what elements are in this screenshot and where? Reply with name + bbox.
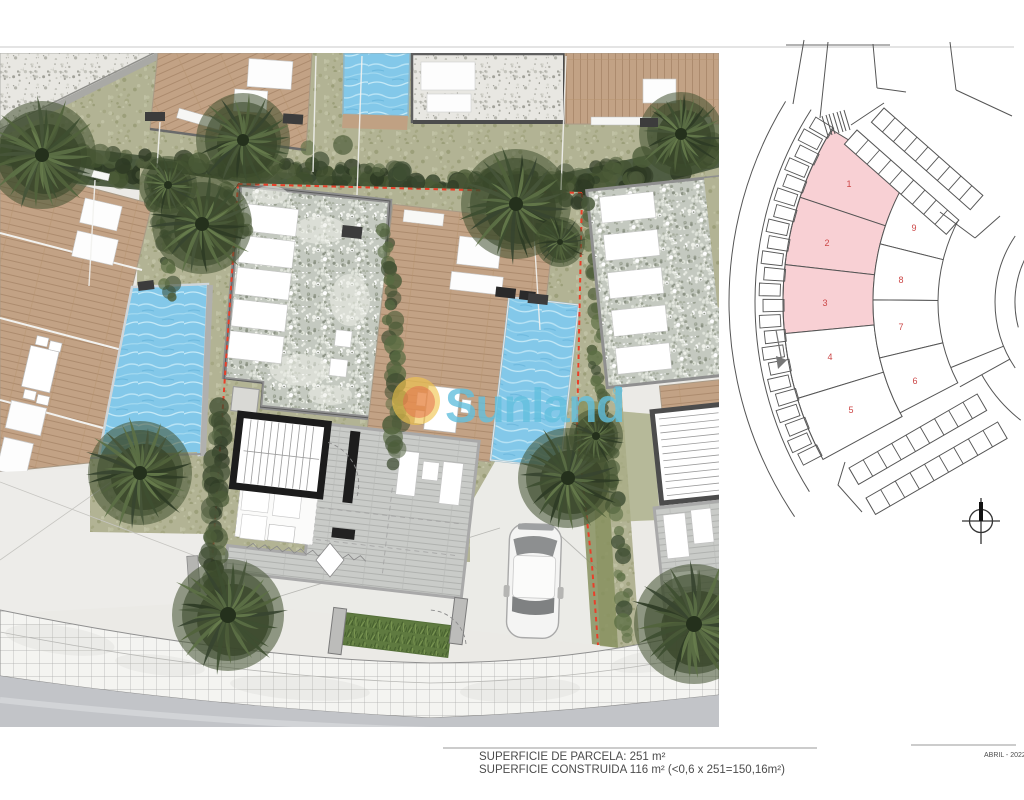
- svg-text:5: 5: [848, 405, 853, 415]
- svg-text:Sunland: Sunland: [445, 380, 624, 433]
- svg-text:2: 2: [824, 238, 829, 248]
- svg-text:SUPERFICIE CONSTRUIDA 116 m² (: SUPERFICIE CONSTRUIDA 116 m² (<0,6 x 251…: [479, 764, 785, 776]
- svg-text:1: 1: [846, 179, 851, 189]
- svg-text:SUPERFICIE DE PARCELA: 251 m²: SUPERFICIE DE PARCELA: 251 m²: [479, 751, 666, 763]
- svg-text:8: 8: [898, 275, 903, 285]
- svg-text:4: 4: [827, 352, 832, 362]
- svg-text:6: 6: [912, 376, 917, 386]
- svg-text:9: 9: [911, 223, 916, 233]
- svg-text:ABRIL - 2022: ABRIL - 2022: [984, 752, 1024, 759]
- svg-text:7: 7: [898, 322, 903, 332]
- svg-text:®: ®: [613, 383, 623, 398]
- svg-text:3: 3: [822, 298, 827, 308]
